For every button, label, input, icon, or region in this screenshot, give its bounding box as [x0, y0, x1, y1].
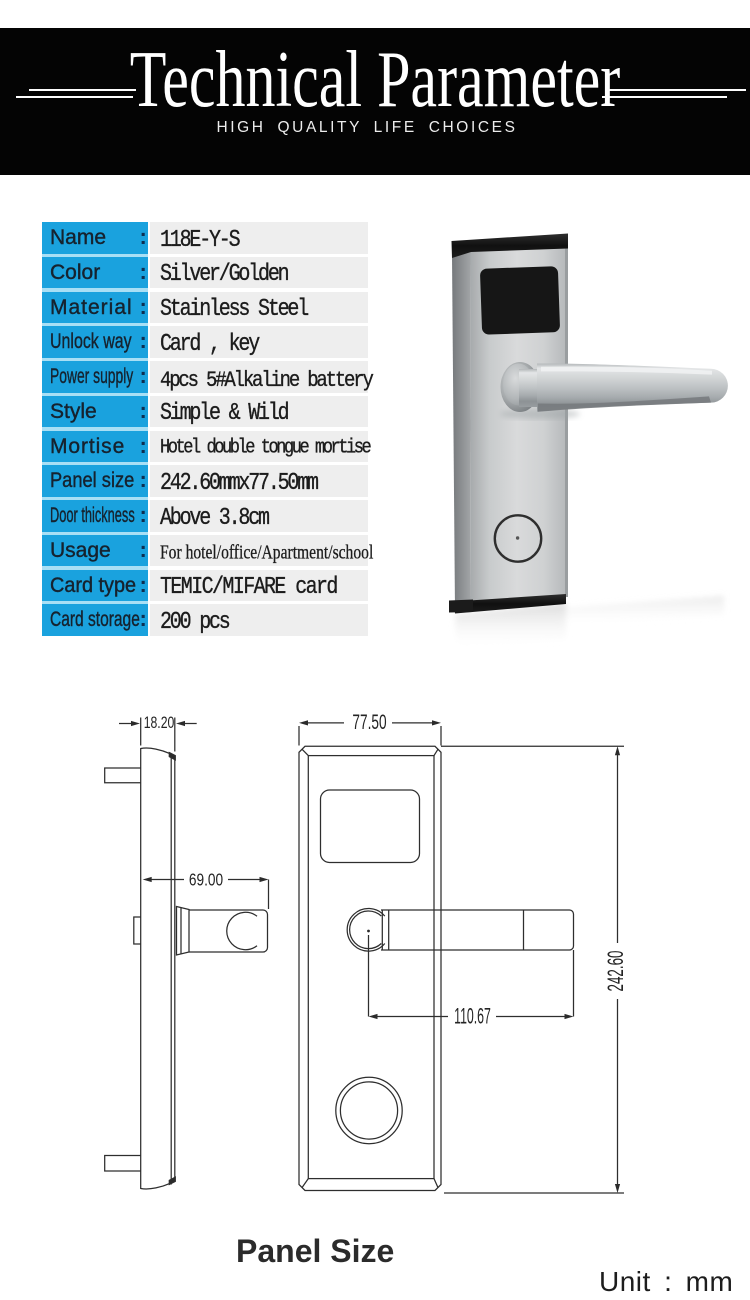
svg-text:110.67: 110.67 [454, 1004, 491, 1029]
svg-text:69.00: 69.00 [189, 871, 223, 890]
svg-text:18.20: 18.20 [144, 714, 175, 732]
svg-text:242.60: 242.60 [604, 950, 628, 991]
svg-text:77.50: 77.50 [352, 710, 386, 734]
